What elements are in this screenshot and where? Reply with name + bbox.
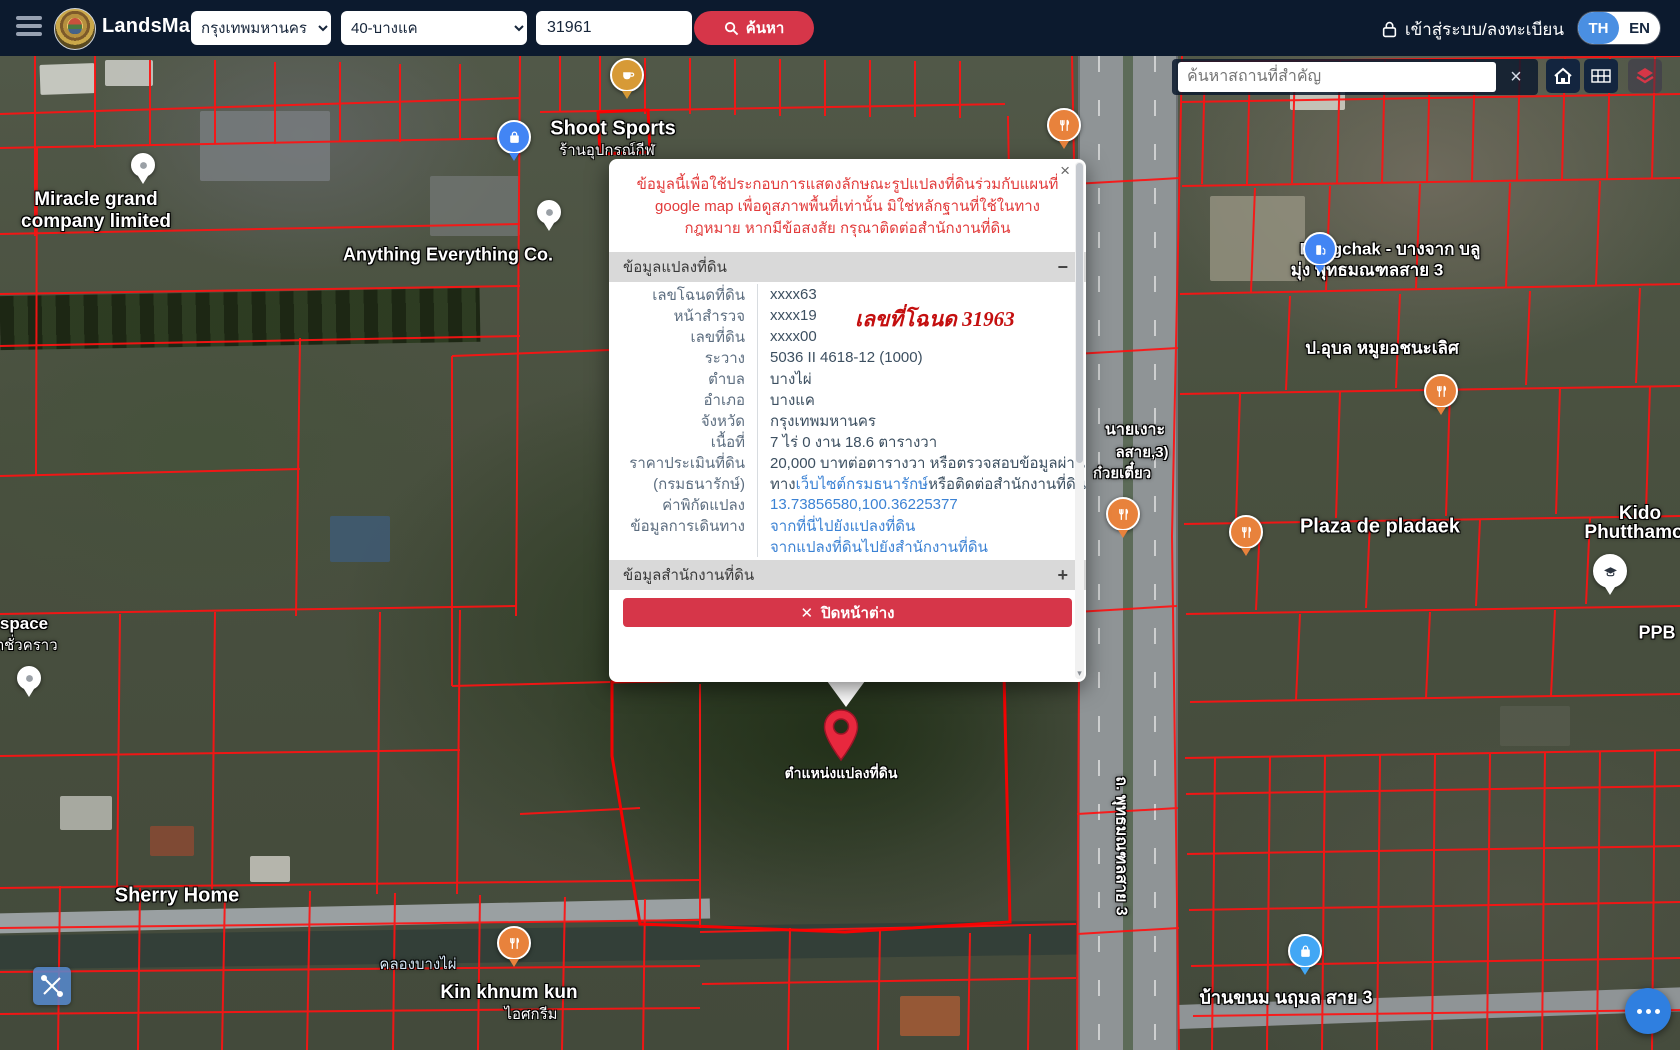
language-toggle: TH EN <box>1578 12 1660 44</box>
map-label: คลองบางไผ่ <box>379 952 456 976</box>
fuel-icon <box>1313 242 1328 257</box>
scroll-down-icon[interactable]: ▾ <box>1075 667 1084 679</box>
section-parcel-info-header[interactable]: ข้อมูลแปลงที่ดิน − <box>609 252 1086 282</box>
search-icon <box>724 21 739 36</box>
popup-callout-pointer <box>827 681 865 726</box>
top-navbar: LandsMaps กรุงเทพมหานคร 40-บางแค ค้นหา เ… <box>0 0 1680 56</box>
building <box>430 176 520 236</box>
poi-pin[interactable] <box>131 153 155 177</box>
poi-icon <box>22 671 37 686</box>
field-value: จากแปลงที่ดินไปยังสำนักงานที่ดิน <box>757 536 1086 557</box>
lock-icon <box>1382 21 1397 38</box>
collapse-icon[interactable]: − <box>1057 257 1068 278</box>
field-value: กรุงเทพมหานคร <box>757 410 1086 431</box>
restaurant-pin[interactable] <box>1106 497 1140 531</box>
restaurant-icon <box>507 936 522 951</box>
deed-number-annotation: เลขที่โฉนด 31963 <box>855 303 1015 336</box>
grid-icon <box>1591 66 1611 86</box>
field-link[interactable]: เว็บไซต์กรมธนารักษ์ <box>796 472 928 496</box>
lang-th-button[interactable]: TH <box>1578 12 1619 44</box>
field-value: บางไผ่ <box>757 368 1086 389</box>
measure-tool-icon <box>40 974 64 998</box>
map-canvas[interactable]: Miracle grandcompany limitedShoot Sports… <box>0 56 1680 1050</box>
menu-icon[interactable] <box>16 16 42 38</box>
map-label: ไอศกรีม <box>504 1002 557 1026</box>
field-value: จากที่นี่ไปยังแปลงที่ดิน <box>757 515 1086 536</box>
school-icon <box>1603 564 1618 579</box>
building <box>39 63 95 95</box>
coffee-icon <box>620 68 635 83</box>
table-row: ราคาประเมินที่ดิน20,000 บาทต่อตารางวา หร… <box>609 452 1086 473</box>
poi-icon <box>542 205 557 220</box>
map-label: Kin khnum kun <box>440 982 577 1004</box>
map-label: Plaza de pladaek <box>1300 516 1460 539</box>
map-label: Phutthamo <box>1584 522 1680 544</box>
table-row: เนื้อที่7 ไร่ 0 งาน 18.6 ตารางวา <box>609 431 1086 452</box>
close-window-button[interactable]: ✕ ปิดหน้าต่าง <box>623 598 1072 627</box>
poi-pin[interactable] <box>537 200 561 224</box>
table-row: จังหวัดกรุงเทพมหานคร <box>609 410 1086 431</box>
restaurant-pin[interactable] <box>1424 374 1458 408</box>
popup-close-icon[interactable]: × <box>1060 162 1070 179</box>
field-value: 7 ไร่ 0 งาน 18.6 ตารางวา <box>757 431 1086 452</box>
table-row: อำเภอบางแค <box>609 389 1086 410</box>
field-value: 20,000 บาทต่อตารางวา หรือตรวจสอบข้อมูลผ่… <box>757 452 1086 473</box>
fuel-pin[interactable] <box>1303 232 1337 266</box>
province-select[interactable]: กรุงเทพมหานคร <box>191 11 331 45</box>
close-icon: ✕ <box>801 604 814 622</box>
building <box>150 826 194 856</box>
field-value: 13.73856580,100.36225377 <box>757 494 1086 515</box>
map-label: ตชั่วคราว <box>0 633 58 657</box>
restaurant-pin[interactable] <box>1047 108 1081 142</box>
section-land-office-header[interactable]: ข้อมูลสำนักงานที่ดิน + <box>609 560 1086 590</box>
restaurant-pin[interactable] <box>497 926 531 960</box>
restaurant-pin[interactable] <box>1229 515 1263 549</box>
parcel-number-input[interactable] <box>536 11 692 45</box>
home-button[interactable] <box>1546 59 1580 93</box>
restaurant-icon <box>1116 507 1131 522</box>
grid-button[interactable] <box>1584 59 1618 93</box>
field-label: ข้อมูลการเดินทาง <box>609 514 757 538</box>
school-pin[interactable] <box>1593 554 1627 588</box>
map-label: บ้านขนม นฤมล สาย 3 <box>1199 983 1372 1012</box>
field-value: ทาง เว็บไซต์กรมธนารักษ์ หรือติดต่อสำนักง… <box>757 473 1086 494</box>
building <box>900 996 960 1036</box>
map-label: Sherry Home <box>115 885 240 908</box>
bakery-icon <box>1298 944 1313 959</box>
table-row: จากแปลงที่ดินไปยังสำนักงานที่ดิน <box>609 536 1086 557</box>
draw-tools-button[interactable] <box>33 967 71 1005</box>
building <box>105 60 153 86</box>
building <box>250 856 290 882</box>
home-icon <box>1553 66 1573 86</box>
department-of-lands-logo <box>54 8 96 50</box>
poi-icon <box>136 158 151 173</box>
expand-icon[interactable]: + <box>1057 565 1068 586</box>
restaurant-icon <box>1057 118 1072 133</box>
coffee-pin[interactable] <box>610 58 644 92</box>
table-row: (กรมธนารักษ์)ทาง เว็บไซต์กรมธนารักษ์ หรื… <box>609 473 1086 494</box>
map-label: company limited <box>21 211 171 233</box>
building <box>1500 706 1570 746</box>
clear-search-icon[interactable]: × <box>1500 62 1532 92</box>
bakery-pin[interactable] <box>1288 934 1322 968</box>
more-actions-fab[interactable] <box>1625 988 1671 1034</box>
restaurant-icon <box>1434 384 1449 399</box>
restaurant-icon <box>1239 525 1254 540</box>
login-link[interactable]: เข้าสู่ระบบ/ลงทะเบียน <box>1382 16 1564 43</box>
place-search-input[interactable] <box>1178 62 1496 92</box>
building <box>60 796 112 830</box>
map-label: ป.อุบล หมูยอชนะเลิศ <box>1305 335 1459 362</box>
table-row: ตำบลบางไผ่ <box>609 368 1086 389</box>
parcel-info-popup: × ข้อมูลนี้เพื่อใช้ประกอบการแสดงลักษณะรู… <box>609 159 1086 682</box>
poi-pin[interactable] <box>17 666 41 690</box>
field-value: บางแค <box>757 389 1086 410</box>
map-label: Miracle grand <box>34 189 158 211</box>
lang-en-button[interactable]: EN <box>1619 12 1660 44</box>
map-label: space <box>0 614 48 634</box>
popup-scrollbar[interactable]: ▾ <box>1075 162 1084 679</box>
map-label: PPB <box>1638 623 1675 644</box>
building <box>330 516 390 562</box>
table-row: ค่าพิกัดแปลง13.73856580,100.36225377 <box>609 494 1086 515</box>
search-button[interactable]: ค้นหา <box>694 11 814 45</box>
map-label: ถ. พุทธมณฑลสาย 3 <box>1109 776 1134 915</box>
map-label: ก๋วยเตี๋ยว <box>1093 461 1151 485</box>
ellipsis-icon <box>1637 1009 1642 1014</box>
field-link[interactable]: 13.73856580,100.36225377 <box>770 496 958 513</box>
shopping-pin[interactable] <box>497 120 531 154</box>
parcel-marker-label: ตำแหน่งแปลงที่ดิน <box>785 763 898 785</box>
field-value: 5036 II 4618-12 (1000) <box>757 347 1086 368</box>
building <box>200 111 330 181</box>
layers-icon <box>1635 66 1655 86</box>
branch-select[interactable]: 40-บางแค <box>341 11 527 45</box>
layers-button[interactable] <box>1628 59 1662 93</box>
map-label: นายเงาะ <box>1105 418 1165 443</box>
table-row: ข้อมูลการเดินทางจากที่นี่ไปยังแปลงที่ดิน <box>609 515 1086 536</box>
map-label: Anything Everything Co. <box>343 245 553 266</box>
shopping-icon <box>507 130 522 145</box>
field-link[interactable]: จากแปลงที่ดินไปยังสำนักงานที่ดิน <box>770 535 988 559</box>
nursery-field <box>0 288 480 350</box>
table-row: ระวาง5036 II 4618-12 (1000) <box>609 347 1086 368</box>
disclaimer-text: ข้อมูลนี้เพื่อใช้ประกอบการแสดงลักษณะรูปแ… <box>609 159 1086 243</box>
